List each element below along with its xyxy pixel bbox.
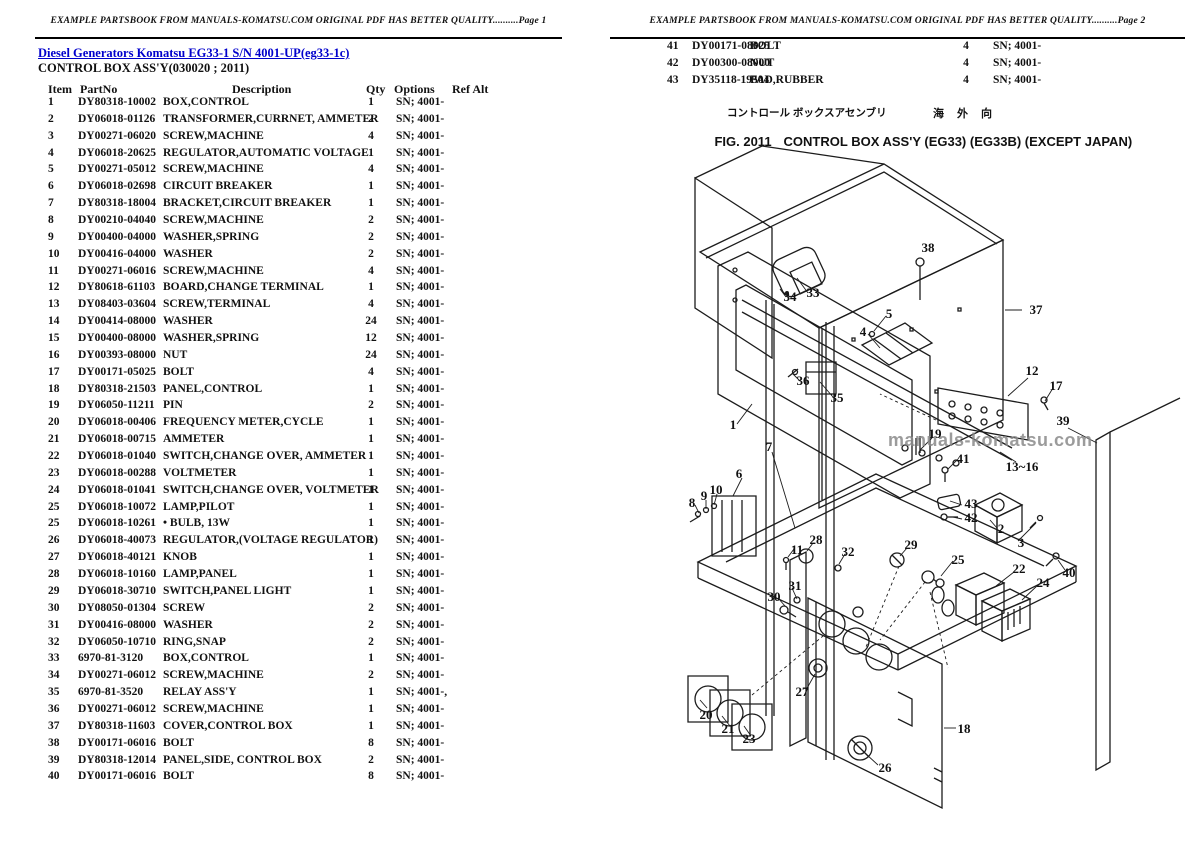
side-panel-drawing bbox=[695, 178, 772, 358]
channel-drawing bbox=[862, 323, 932, 365]
diagram-callout-17: 17 bbox=[1050, 378, 1064, 393]
partsbook-page: EXAMPLE PARTSBOOK FROM MANUALS-KOMATSU.C… bbox=[0, 0, 1190, 842]
diagram-callout-37: 37 bbox=[1030, 302, 1044, 317]
diagram-callout-9: 9 bbox=[701, 488, 708, 503]
diagram-callout-35: 35 bbox=[831, 390, 845, 405]
diagram-callout-7: 7 bbox=[766, 439, 773, 454]
diagram-callout-11: 11 bbox=[791, 542, 803, 557]
diagram-callout-27: 27 bbox=[796, 684, 810, 699]
diagram-callout-5: 5 bbox=[886, 306, 893, 321]
watermark-text: manuals-komatsu.com bbox=[888, 430, 1093, 451]
diagram-callout-41: 41 bbox=[957, 451, 970, 466]
diagram-callout-6: 6 bbox=[736, 466, 743, 481]
diagram-callout-42: 42 bbox=[965, 510, 978, 525]
relay-drawing bbox=[788, 362, 836, 394]
diagram-callout-8: 8 bbox=[689, 495, 696, 510]
diagram-callout-25: 25 bbox=[952, 552, 966, 567]
diagram-callout-10: 10 bbox=[710, 482, 723, 497]
circuit-breaker-drawing bbox=[690, 496, 756, 556]
small-parts-drawing bbox=[780, 549, 944, 617]
diagram-callout-4: 4 bbox=[860, 324, 867, 339]
diagram-callout-31: 31 bbox=[789, 578, 802, 593]
diagram-callout-30: 30 bbox=[768, 589, 781, 604]
diagram-callout-24: 24 bbox=[1037, 575, 1051, 590]
diagram-callout-3: 3 bbox=[1018, 535, 1025, 550]
diagram-callout-34: 34 bbox=[784, 289, 798, 304]
diagram-callout-39: 39 bbox=[1057, 413, 1071, 428]
diagram-callout-1: 1 bbox=[730, 417, 737, 432]
diagram-callout-12: 12 bbox=[1026, 363, 1039, 378]
diagram-callout-40: 40 bbox=[1063, 565, 1076, 580]
diagram-callout-13~16: 13~16 bbox=[1006, 459, 1039, 474]
transformer-drawing bbox=[937, 493, 1043, 543]
callout-leader-lines bbox=[695, 278, 1097, 765]
diagram-callout-38: 38 bbox=[922, 240, 936, 255]
diagram-callout-2: 2 bbox=[998, 521, 1005, 536]
side-panel-39-drawing bbox=[1096, 398, 1180, 770]
cutout-box-drawing bbox=[770, 244, 829, 300]
diagram-callout-43: 43 bbox=[965, 496, 979, 511]
diagram-callout-36: 36 bbox=[797, 373, 811, 388]
diagram-callout-32: 32 bbox=[842, 544, 855, 559]
diagram-callout-33: 33 bbox=[807, 285, 821, 300]
diagram-callout-22: 22 bbox=[1013, 561, 1026, 576]
diagram-callout-18: 18 bbox=[958, 721, 972, 736]
exploded-diagram: 383733345436351217139194113~167691081128… bbox=[0, 0, 1190, 842]
front-panel-drawing bbox=[808, 598, 942, 808]
diagram-callout-26: 26 bbox=[879, 760, 893, 775]
diagram-callout-29: 29 bbox=[905, 537, 919, 552]
diagram-callout-21: 21 bbox=[722, 721, 735, 736]
diagram-callout-20: 20 bbox=[700, 707, 713, 722]
knob-lamp-drawing bbox=[809, 659, 872, 760]
diagram-callout-23: 23 bbox=[743, 731, 757, 746]
diagram-callout-28: 28 bbox=[810, 532, 824, 547]
